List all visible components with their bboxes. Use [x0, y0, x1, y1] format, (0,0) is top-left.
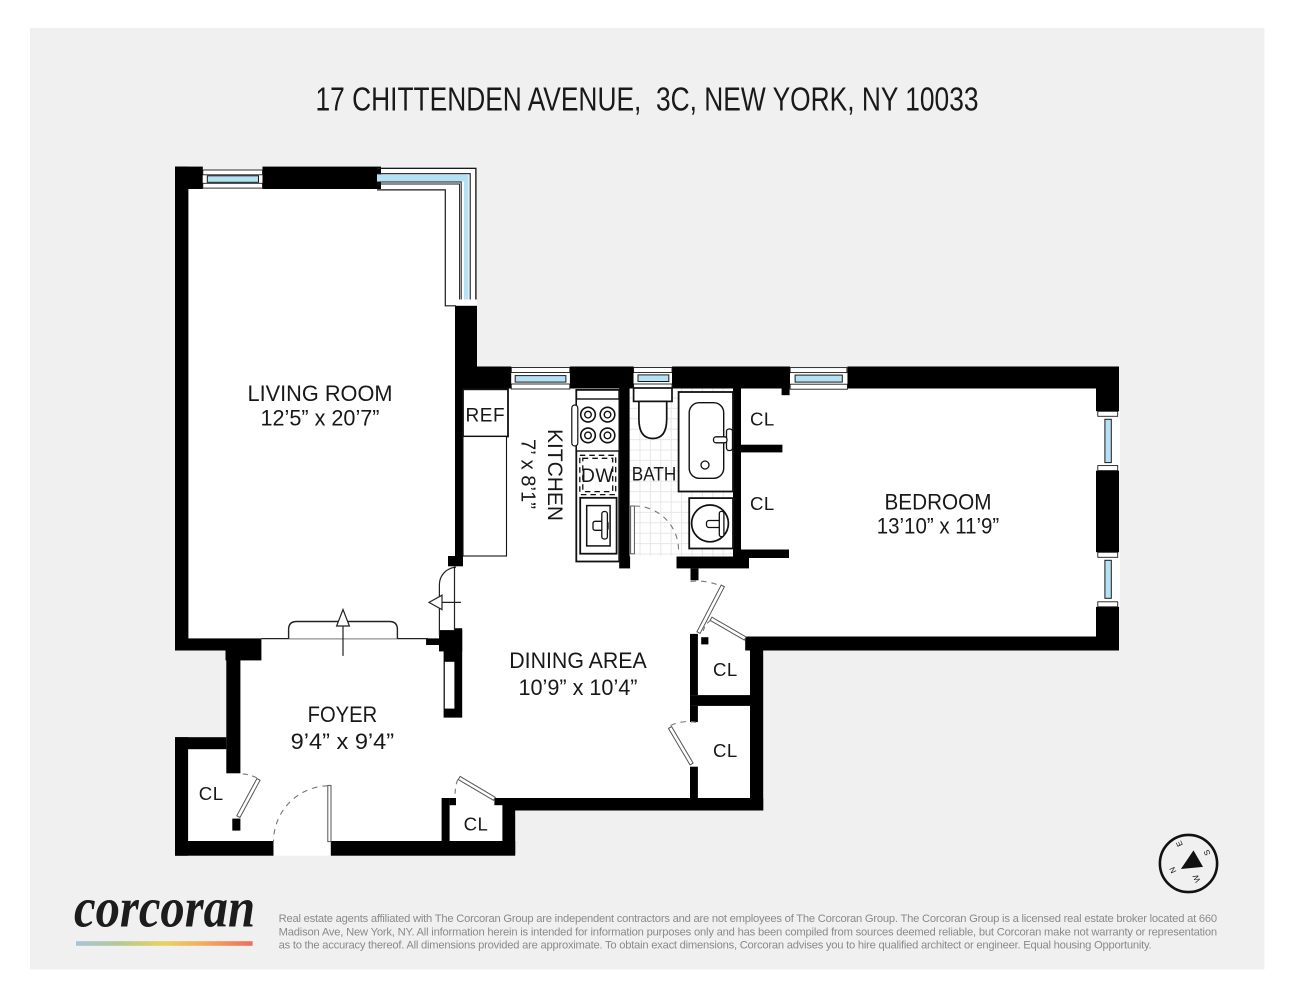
svg-text:CL: CL: [713, 740, 738, 761]
svg-text:FOYER: FOYER: [308, 702, 378, 727]
svg-text:BEDROOM: BEDROOM: [885, 490, 992, 515]
svg-text:12’5” x 20’7”: 12’5” x 20’7”: [261, 406, 380, 431]
svg-text:7’ x 8’1”: 7’ x 8’1”: [517, 439, 539, 509]
svg-text:corcoran: corcoran: [74, 878, 255, 940]
svg-text:CL: CL: [713, 659, 738, 680]
svg-text:KITCHEN: KITCHEN: [543, 429, 566, 521]
svg-text:BATH: BATH: [632, 464, 677, 485]
svg-text:REF: REF: [466, 405, 506, 426]
svg-text:LIVING ROOM: LIVING ROOM: [248, 381, 393, 406]
svg-text:Madison Ave, New York, NY. All: Madison Ave, New York, NY. All informati…: [279, 926, 1218, 938]
svg-text:CL: CL: [750, 409, 775, 430]
svg-text:CL: CL: [199, 783, 224, 804]
svg-text:DINING AREA: DINING AREA: [509, 648, 647, 673]
svg-text:Real estate agents affiliated: Real estate agents affiliated with The C…: [279, 913, 1218, 925]
svg-text:9’4” x 9’4”: 9’4” x 9’4”: [291, 729, 395, 754]
svg-text:DW: DW: [581, 466, 614, 487]
svg-text:CL: CL: [464, 813, 489, 834]
svg-text:17 CHITTENDEN AVENUE, 3C, NEW: 17 CHITTENDEN AVENUE, 3C, NEW YORK, NY 1…: [316, 81, 979, 118]
svg-text:CL: CL: [750, 493, 775, 514]
svg-text:as to the accuracy thereof. Al: as to the accuracy thereof. All dimensio…: [279, 940, 1152, 952]
svg-text:13’10” x 11’9”: 13’10” x 11’9”: [877, 513, 1000, 538]
svg-text:10’9” x 10’4”: 10’9” x 10’4”: [519, 675, 638, 700]
